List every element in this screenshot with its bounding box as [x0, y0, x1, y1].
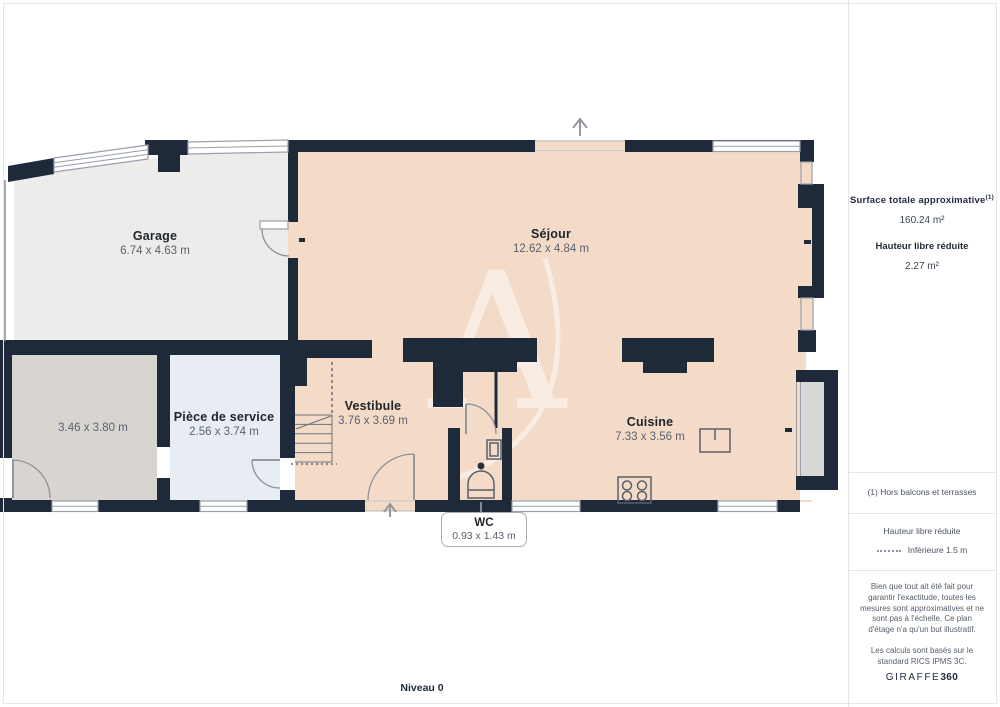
- info-sidebar: Surface totale approximative(1) 160.24 m…: [848, 0, 998, 707]
- wc-flush-dot: [478, 463, 485, 470]
- floorplan-page: A: [0, 0, 1000, 707]
- legend: Hauteur libre réduite Inférieure 1.5 m: [849, 526, 995, 555]
- sidebar-separator: [849, 472, 995, 473]
- reduced-height-value: 2.27 m²: [849, 261, 995, 272]
- wc-callout: WC 0.93 x 1.43 m: [441, 512, 527, 547]
- surface-footnote: (1) Hors balcons et terrasses: [849, 487, 995, 497]
- surface-summary: Surface totale approximative(1) 160.24 m…: [849, 194, 995, 272]
- level-label: Niveau 0: [400, 682, 443, 694]
- disclaimer-standard: Les calculs sont basés sur le standard R…: [849, 646, 995, 668]
- sidebar-separator: [849, 570, 995, 571]
- reduced-height-title: Hauteur libre réduite: [849, 241, 995, 252]
- garage-door-leaf: [260, 221, 288, 229]
- right-french-window-1: [801, 162, 812, 184]
- disclaimer-accuracy: Bien que tout ait été fait pour garantir…: [849, 582, 995, 636]
- brand-suffix: 360: [940, 672, 958, 683]
- legend-item: Inférieure 1.5 m: [908, 545, 968, 555]
- floors: [12, 143, 824, 502]
- dashed-line-icon: [877, 550, 901, 552]
- brand-name: GIRAFFE: [886, 672, 941, 683]
- surface-title: Surface totale approximative(1): [849, 194, 995, 206]
- brand-logo: GIRAFFE360: [849, 672, 995, 683]
- footnote-marker: (1): [985, 194, 994, 201]
- legend-row: Inférieure 1.5 m: [849, 545, 995, 555]
- sidebar-separator: [849, 513, 995, 514]
- top-entry-arrow-icon: [573, 119, 587, 136]
- right-french-window-2: [801, 298, 813, 330]
- legend-title: Hauteur libre réduite: [849, 526, 995, 536]
- surface-value: 160.24 m²: [849, 215, 995, 226]
